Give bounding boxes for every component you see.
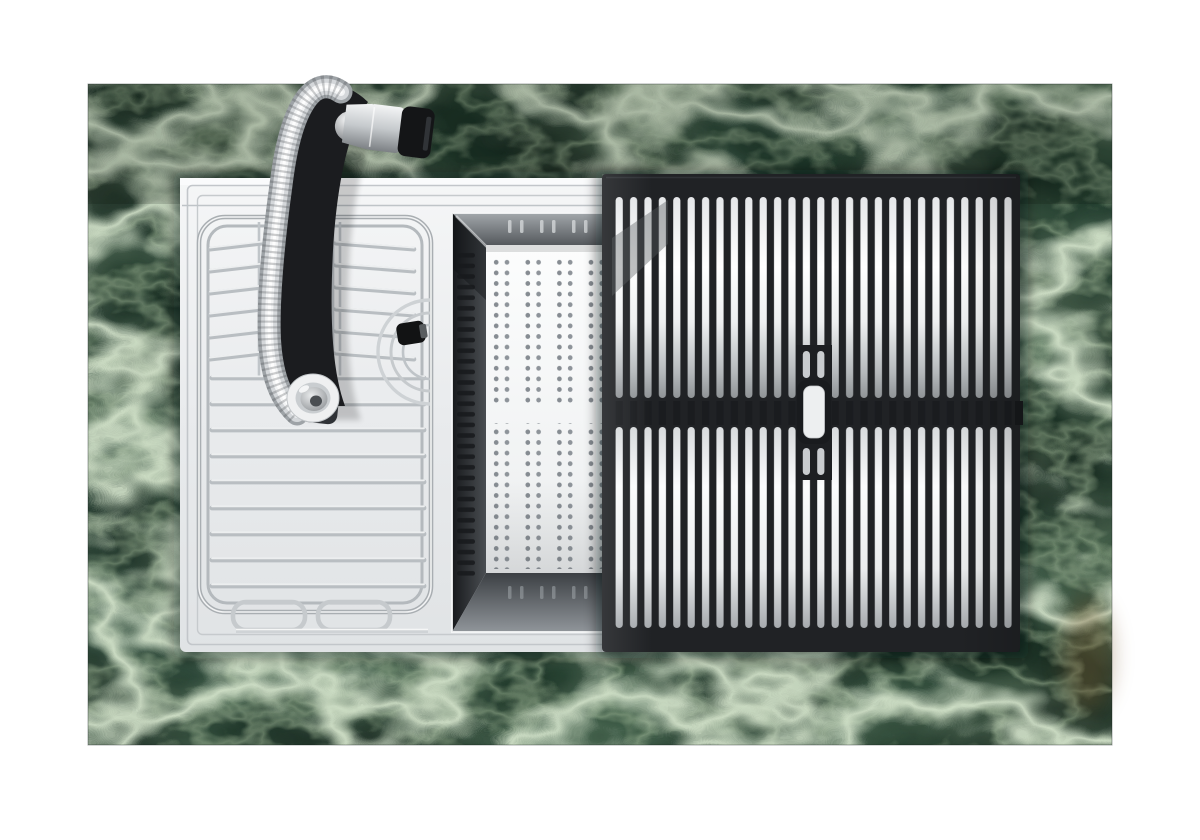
screenshot-root bbox=[0, 0, 1200, 840]
rollup-edge-notch bbox=[1015, 401, 1023, 425]
well-wall-ribs bbox=[454, 250, 480, 576]
rollup-drying-rack bbox=[596, 170, 1028, 658]
product-photo-scene bbox=[0, 0, 1200, 840]
rollup-handle-tab bbox=[804, 386, 825, 438]
marble-rust-vein bbox=[1062, 597, 1114, 713]
